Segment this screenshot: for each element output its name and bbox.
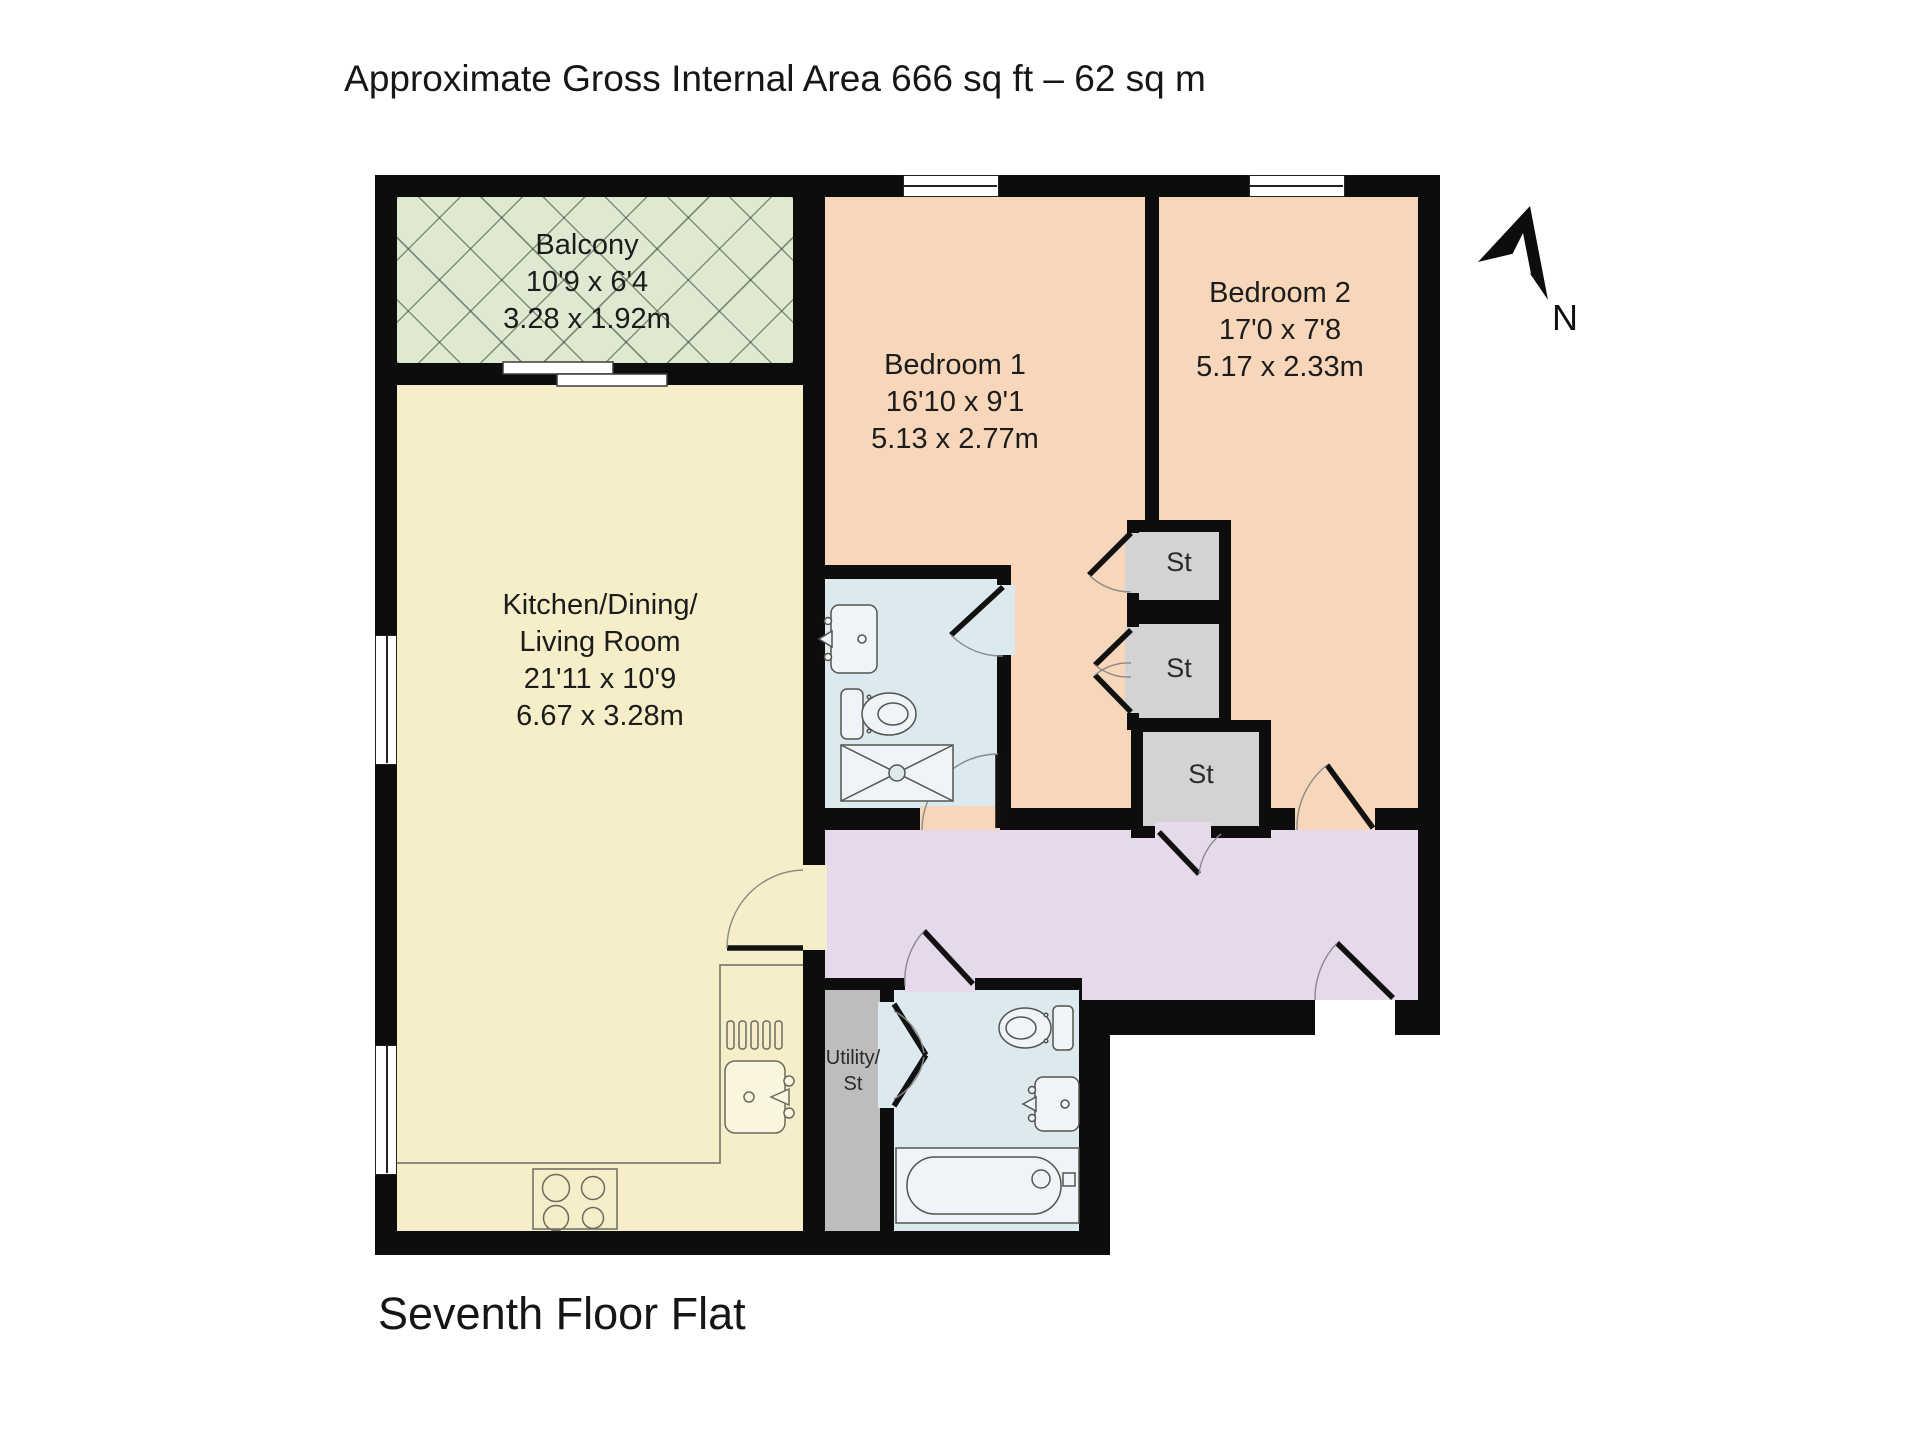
kitchen-label: Kitchen/Dining/ Living Room 21'11 x 10'9…: [420, 587, 780, 735]
bathroom2-toilet: [999, 1006, 1073, 1050]
storage1-label: St: [1139, 547, 1219, 578]
kitchen-dims-metric: 6.67 x 3.28m: [420, 698, 780, 735]
floorplan-page: Approximate Gross Internal Area 666 sq f…: [0, 0, 1920, 1440]
floor-title: Seventh Floor Flat: [378, 1288, 746, 1340]
balcony-dims-metric: 3.28 x 1.92m: [422, 301, 752, 338]
bathtub: [896, 1148, 1079, 1223]
page-title: Approximate Gross Internal Area 666 sq f…: [0, 58, 1550, 100]
entrance-door-arc: [1315, 943, 1337, 1000]
north-arrow-icon: N: [1468, 200, 1608, 360]
balcony-dims-imperial: 10'9 x 6'4: [422, 264, 752, 301]
storage3-label: St: [1143, 759, 1259, 790]
bedroom2-label: Bedroom 2 17'0 x 7'8 5.17 x 2.33m: [1165, 275, 1395, 386]
kitchen-name-line2: Living Room: [420, 624, 780, 661]
balcony-name: Balcony: [422, 227, 752, 264]
bedroom1-dims-imperial: 16'10 x 9'1: [835, 384, 1075, 421]
bedroom1-label: Bedroom 1 16'10 x 9'1 5.13 x 2.77m: [835, 347, 1075, 458]
kitchen-door-opening: [801, 865, 827, 950]
bathroom2-sink: [1023, 1077, 1079, 1131]
utility-label-line2: St: [815, 1071, 891, 1097]
bathroom1-sink: [819, 605, 877, 673]
compass-north-label: N: [1552, 297, 1578, 338]
storage1-door-leaf: [1089, 533, 1131, 575]
bathroom1-toilet: [841, 689, 916, 739]
kitchen-sink: [725, 1061, 794, 1133]
entrance-door-opening: [1315, 1000, 1395, 1035]
floorplan: Balcony 10'9 x 6'4 3.28 x 1.92m Kitchen/…: [375, 175, 1445, 1255]
kitchen-fixtures: [397, 965, 803, 1231]
storage1-door-arc: [1089, 575, 1131, 592]
kitchen-dims-imperial: 21'11 x 10'9: [420, 661, 780, 698]
kitchen-door-arc: [727, 870, 803, 948]
compass: N: [1468, 200, 1608, 360]
utility-label: Utility/ St: [815, 1045, 891, 1097]
bathroom2-fixtures: [896, 1006, 1079, 1223]
kitchen-hob: [533, 1169, 617, 1231]
bedroom2-dims-imperial: 17'0 x 7'8: [1165, 312, 1395, 349]
bathroom1-fixtures: [819, 605, 953, 801]
utility-door-leaf-top: [894, 1004, 926, 1055]
bedroom1-dims-metric: 5.13 x 2.77m: [835, 421, 1075, 458]
utility-label-line1: Utility/: [815, 1045, 891, 1071]
balcony-sliding-door: [503, 362, 667, 386]
bathroom1-shower-tray: [841, 745, 953, 801]
kitchen-name-line1: Kitchen/Dining/: [420, 587, 780, 624]
bedroom2-name: Bedroom 2: [1165, 275, 1395, 312]
storage2-label: St: [1139, 653, 1219, 684]
bedroom1-door-opening: [920, 806, 1000, 830]
balcony-label: Balcony 10'9 x 6'4 3.28 x 1.92m: [422, 227, 752, 338]
bedroom1-name: Bedroom 1: [835, 347, 1075, 384]
kitchen-drainer: [727, 1021, 782, 1049]
bedroom2-dims-metric: 5.17 x 2.33m: [1165, 349, 1395, 386]
utility-door-leaf-bottom: [894, 1055, 926, 1106]
entrance-door-leaf: [1337, 943, 1393, 998]
